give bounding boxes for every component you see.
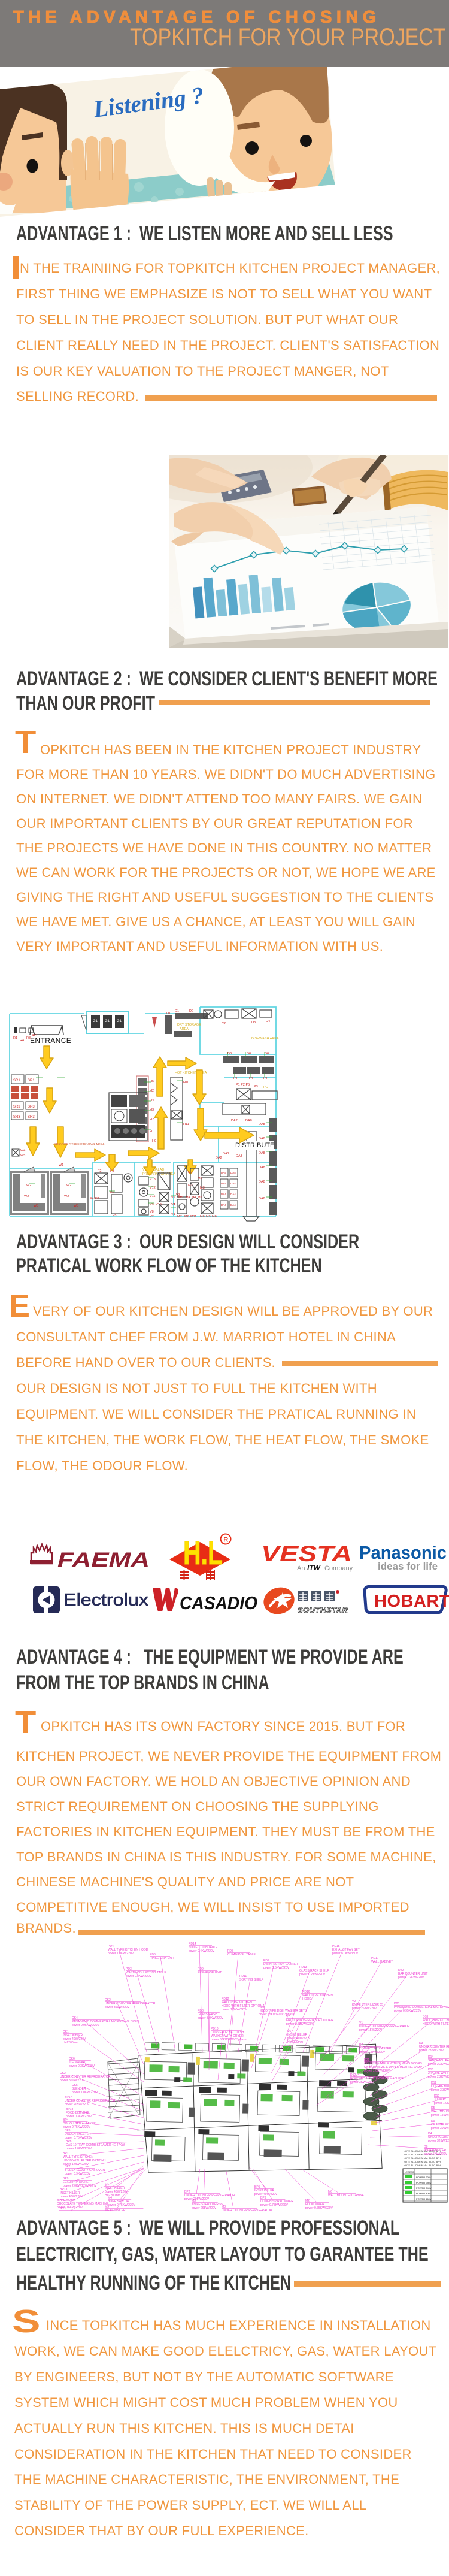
- svg-text:M11: M11: [190, 1215, 196, 1219]
- svg-text:DA8: DA8: [259, 1197, 265, 1201]
- svg-text:R3: R3: [26, 1036, 31, 1040]
- svg-text:W4: W4: [20, 1149, 25, 1153]
- svg-text:power 0.95KW/220V: power 0.95KW/220V: [72, 2024, 100, 2027]
- svg-text:H11: H11: [183, 1123, 189, 1126]
- svg-text:M1: M1: [188, 1171, 193, 1174]
- svg-text:UNDER COUNTER REFRIGERATOR: UNDER COUNTER REFRIGERATOR: [222, 2209, 272, 2211]
- svg-text:DA8: DA8: [259, 1151, 265, 1155]
- svg-text:power 268W/220V: power 268W/220V: [192, 2206, 217, 2210]
- svg-text:DA2: DA2: [216, 1156, 222, 1160]
- svg-text:CASADIO: CASADIO: [180, 1592, 257, 1613]
- svg-text:DA8: DA8: [259, 1137, 265, 1141]
- svg-text:power 1.0KW/220V: power 1.0KW/220V: [66, 2147, 92, 2151]
- svg-text:M9: M9: [206, 1215, 211, 1219]
- svg-text:H5: H5: [150, 1080, 154, 1083]
- svg-text:power 0.75KW/220V: power 0.75KW/220V: [108, 2203, 136, 2207]
- svg-text:AREA: AREA: [180, 1027, 189, 1031]
- svg-text:SR3: SR3: [13, 1105, 20, 1109]
- svg-text:SR3: SR3: [28, 1105, 35, 1109]
- svg-text:G1: G1: [117, 1020, 122, 1023]
- svg-text:H3: H3: [150, 1108, 154, 1112]
- svg-text:power 1.0KW/220V: power 1.0KW/220V: [434, 2102, 449, 2105]
- svg-text:POT: POT: [263, 1086, 271, 1089]
- svg-text:power 6KW/220V: power 6KW/220V: [424, 2152, 448, 2156]
- svg-text:WALL MOUNTED CABINET: WALL MOUNTED CABINET: [328, 2194, 366, 2197]
- svg-text:DA8: DA8: [259, 1180, 265, 1184]
- svg-text:power 2.5KW/220V: power 2.5KW/220V: [263, 1966, 290, 1970]
- svg-text:NOTE ALL DIM IN MM. ELEC 3PH: NOTE ALL DIM IN MM. ELEC 3PH: [404, 2160, 441, 2163]
- svg-text:power 2.0KW/220V/60Hz: power 2.0KW/220V/60Hz: [63, 2184, 97, 2188]
- svg-text:power 268W/220V: power 268W/220V: [352, 2007, 377, 2010]
- svg-text:power 0.3KW/220V: power 0.3KW/220V: [69, 2064, 95, 2068]
- svg-text:power 360W/220V: power 360W/220V: [105, 2006, 130, 2009]
- svg-text:D6: D6: [247, 1052, 251, 1056]
- svg-text:SR3: SR3: [28, 1115, 35, 1119]
- svg-text:D6: D6: [227, 1052, 232, 1056]
- svg-text:M7: M7: [177, 1215, 182, 1219]
- svg-text:An: An: [297, 1565, 305, 1572]
- svg-text:R4: R4: [20, 1039, 24, 1042]
- svg-text:DA1: DA1: [223, 1152, 229, 1156]
- svg-text:P4: P4: [233, 1077, 238, 1080]
- svg-text:power 0.75KW/220V: power 0.75KW/220V: [305, 2206, 333, 2210]
- svg-text:power 150W/220V: power 150W/220V: [431, 2114, 449, 2117]
- svg-text:V13: V13: [150, 1178, 156, 1181]
- svg-text:VESTA: VESTA: [261, 1541, 352, 1566]
- svg-text:SERVICE STAFF PARKING AREA: SERVICE STAFF PARKING AREA: [54, 1143, 105, 1147]
- svg-text:V8: V8: [150, 1210, 154, 1214]
- svg-text:M4: M4: [186, 1196, 190, 1199]
- svg-text:H1: H1: [150, 1130, 154, 1133]
- svg-text:CLEAN DISH TABLE: CLEAN DISH TABLE: [227, 1953, 256, 1957]
- svg-text:power 3.0KW/380V: power 3.0KW/380V: [332, 1952, 359, 1955]
- svg-text:ideas for life: ideas for life: [378, 1561, 438, 1572]
- svg-text:power 15W/220V: power 15W/220V: [359, 2028, 383, 2032]
- svg-text:Panasonic: Panasonic: [359, 1542, 447, 1563]
- svg-text:V2: V2: [171, 1196, 175, 1199]
- svg-text:H2: H2: [150, 1089, 154, 1093]
- svg-text:D3: D3: [251, 1021, 256, 1024]
- svg-text:power 1.2KW/220V: power 1.2KW/220V: [398, 1976, 424, 1979]
- svg-text:DA3: DA3: [236, 1154, 242, 1158]
- svg-text:power 0.95KW/220V: power 0.95KW/220V: [394, 2009, 422, 2013]
- svg-text:DISHWASH AREA: DISHWASH AREA: [251, 1037, 279, 1041]
- svg-text:SOUTHSTAR: SOUTHSTAR: [298, 1606, 348, 1614]
- svg-text:V4: V4: [171, 1203, 175, 1207]
- svg-text:RC: RC: [32, 1034, 37, 1038]
- svg-text:SR1: SR1: [13, 1079, 20, 1083]
- svg-text:POWER 400V: POWER 400V: [416, 2192, 432, 2195]
- svg-text:power 40W/220V: power 40W/220V: [254, 2193, 278, 2196]
- svg-text:power 0.2KW/220V: power 0.2KW/220V: [299, 1973, 326, 1976]
- svg-text:M2: M2: [198, 1177, 202, 1180]
- svg-text:D1: D1: [175, 1009, 179, 1013]
- svg-text:ITW: ITW: [307, 1564, 321, 1572]
- svg-text:power 1.0KW/220V: power 1.0KW/220V: [108, 1952, 134, 1955]
- svg-text:DA7: DA7: [231, 1119, 238, 1123]
- svg-text:V11: V11: [150, 1195, 155, 1198]
- svg-text:DA5: DA5: [221, 1171, 226, 1174]
- svg-text:D1: D1: [166, 1012, 171, 1015]
- svg-text:DA4: DA4: [221, 1193, 226, 1196]
- svg-text:V1: V1: [171, 1213, 175, 1216]
- svg-text:C2: C2: [222, 1022, 226, 1026]
- svg-text:V12: V12: [150, 1186, 156, 1190]
- svg-text:M5: M5: [198, 1196, 202, 1199]
- svg-text:V10: V10: [156, 1203, 162, 1207]
- svg-text:W2: W2: [66, 1184, 71, 1187]
- svg-text:W3: W3: [74, 1204, 78, 1208]
- svg-text:NOTE ALL DIM IN MM. ELEC 3PH: NOTE ALL DIM IN MM. ELEC 3PH: [404, 2157, 441, 2160]
- svg-text:power 287W/220V: power 287W/220V: [419, 2049, 444, 2052]
- svg-text:power 1.3KW/220V: power 1.3KW/220V: [359, 2051, 386, 2054]
- svg-text:DA5: DA5: [230, 1171, 236, 1174]
- svg-text:DA4: DA4: [230, 1193, 236, 1196]
- svg-text:W2: W2: [26, 1184, 31, 1187]
- svg-text:POWER 280V: POWER 280V: [416, 2181, 432, 2184]
- svg-text:V9: V9: [150, 1203, 154, 1207]
- svg-text:power 0.4KW/220V: power 0.4KW/220V: [189, 1949, 215, 1953]
- svg-text:power 205W/220V: power 205W/220V: [65, 2103, 90, 2106]
- svg-text:F5: F5: [113, 1214, 116, 1217]
- svg-text:W5: W5: [20, 1154, 25, 1157]
- svg-text:DA8: DA8: [245, 1119, 252, 1123]
- svg-text:P4: P4: [263, 1077, 268, 1080]
- svg-text:H10: H10: [183, 1081, 189, 1084]
- svg-text:ENTRANCE: ENTRANCE: [30, 1036, 71, 1045]
- svg-text:M6: M6: [200, 1215, 205, 1219]
- svg-text:H4: H4: [150, 1099, 154, 1102]
- svg-text:power 0.3KW/220V: power 0.3KW/220V: [66, 2115, 92, 2118]
- svg-text:DA8: DA8: [259, 1123, 265, 1126]
- svg-text:DA4: DA4: [230, 1182, 236, 1185]
- svg-text:D6: D6: [265, 1052, 269, 1056]
- svg-text:DA4: DA4: [221, 1204, 226, 1207]
- svg-text:power 0.3KW/220V: power 0.3KW/220V: [126, 1975, 152, 1978]
- svg-text:H=2200mm: H=2200mm: [63, 2041, 78, 2045]
- svg-text:F5: F5: [110, 1191, 114, 1195]
- svg-text:P4: P4: [249, 1077, 253, 1080]
- svg-text:M4: M4: [192, 1196, 196, 1199]
- svg-text:RINSE SINK UNIT: RINSE SINK UNIT: [150, 1957, 174, 1960]
- svg-text:power 326W/220V: power 326W/220V: [428, 2139, 449, 2143]
- svg-text:M3: M3: [200, 1186, 205, 1190]
- svg-text:power 2.2KW/220V: power 2.2KW/220V: [428, 2075, 449, 2079]
- svg-text:Company: Company: [324, 1565, 353, 1572]
- svg-text:V7: V7: [150, 1215, 154, 1219]
- svg-text:DA4: DA4: [221, 1182, 226, 1185]
- svg-text:HOOD: HOOD: [302, 1997, 311, 2001]
- svg-text:WALL CABINET: WALL CABINET: [371, 1960, 393, 1964]
- svg-text:POWER 340V: POWER 340V: [416, 2187, 432, 2190]
- svg-text:power 300W/220V: power 300W/220V: [431, 2127, 449, 2130]
- svg-text:W2: W2: [24, 1195, 29, 1198]
- svg-text:Electrolux: Electrolux: [63, 1591, 149, 1610]
- svg-text:power 2.2KW/220V: power 2.2KW/220V: [428, 2063, 449, 2066]
- svg-text:power 1.0KW/220V: power 1.0KW/220V: [222, 2008, 248, 2012]
- svg-text:R: R: [224, 1537, 229, 1544]
- svg-text:POWER 460V: POWER 460V: [416, 2197, 432, 2200]
- svg-text:F3: F3: [95, 1197, 99, 1201]
- svg-text:DA8: DA8: [259, 1166, 265, 1169]
- svg-text:SR1: SR1: [28, 1079, 35, 1083]
- svg-text:POWER 220V: POWER 220V: [416, 2176, 432, 2179]
- svg-text:D2: D2: [189, 1009, 193, 1013]
- svg-text:H.L: H.L: [183, 1534, 223, 1571]
- svg-text:power 3.3KW/220V: power 3.3KW/220V: [431, 2088, 449, 2092]
- svg-text:HOOD WITH FILTER OPTION 1: HOOD WITH FILTER OPTION 1: [423, 2022, 449, 2026]
- svg-text:M5: M5: [178, 1196, 183, 1199]
- svg-text:NOTE ALL DIM IN MM. ELEC 3PH: NOTE ALL DIM IN MM. ELEC 3PH: [404, 2164, 441, 2167]
- svg-text:M6: M6: [184, 1215, 189, 1219]
- svg-text:P3: P3: [254, 1085, 258, 1089]
- svg-text:LEGEND: LEGEND: [405, 2170, 415, 2173]
- svg-text:FAEMA: FAEMA: [57, 1549, 150, 1571]
- svg-text:power 0.75KW/220V: power 0.75KW/220V: [260, 2203, 289, 2207]
- svg-text:DRY STORAGE: DRY STORAGE: [177, 1023, 201, 1027]
- svg-text:F4: F4: [90, 1197, 93, 1201]
- svg-text:G1: G1: [93, 1020, 98, 1023]
- svg-text:H9: H9: [152, 1139, 156, 1143]
- svg-text:SORTING SHELF: SORTING SHELF: [239, 1978, 263, 1982]
- svg-text:power 360W/220V: power 360W/220V: [60, 2079, 85, 2082]
- svg-text:power 205W/220V: power 205W/220V: [184, 2197, 210, 2201]
- svg-text:SR3: SR3: [13, 1115, 20, 1119]
- svg-text:M2: M2: [188, 1184, 193, 1187]
- svg-text:W3: W3: [34, 1204, 38, 1208]
- svg-text:H2: H2: [150, 1118, 154, 1121]
- svg-text:R1: R1: [13, 1036, 17, 1040]
- svg-text:W2: W2: [64, 1195, 69, 1198]
- svg-text:H=2200mm: H=2200mm: [287, 2040, 303, 2044]
- svg-text:power 0.9KW/220V: power 0.9KW/220V: [65, 2172, 91, 2176]
- svg-text:F2: F2: [98, 1169, 101, 1173]
- svg-text:D4: D4: [266, 1020, 270, 1023]
- svg-text:G1: G1: [105, 1020, 110, 1023]
- svg-text:PRE-RINSE UNIT: PRE-RINSE UNIT: [198, 1971, 222, 1975]
- svg-text:P1 P2 P5: P1 P2 P5: [236, 1083, 250, 1087]
- svg-text:M6: M6: [212, 1215, 217, 1219]
- svg-text:DISTRIBUTE: DISTRIBUTE: [235, 1142, 274, 1149]
- svg-text:HOBART: HOBART: [374, 1592, 449, 1611]
- svg-text:W1: W1: [59, 1163, 63, 1167]
- svg-text:H=2200mm: H=2200mm: [105, 2194, 120, 2197]
- svg-text:DA4: DA4: [230, 1204, 236, 1207]
